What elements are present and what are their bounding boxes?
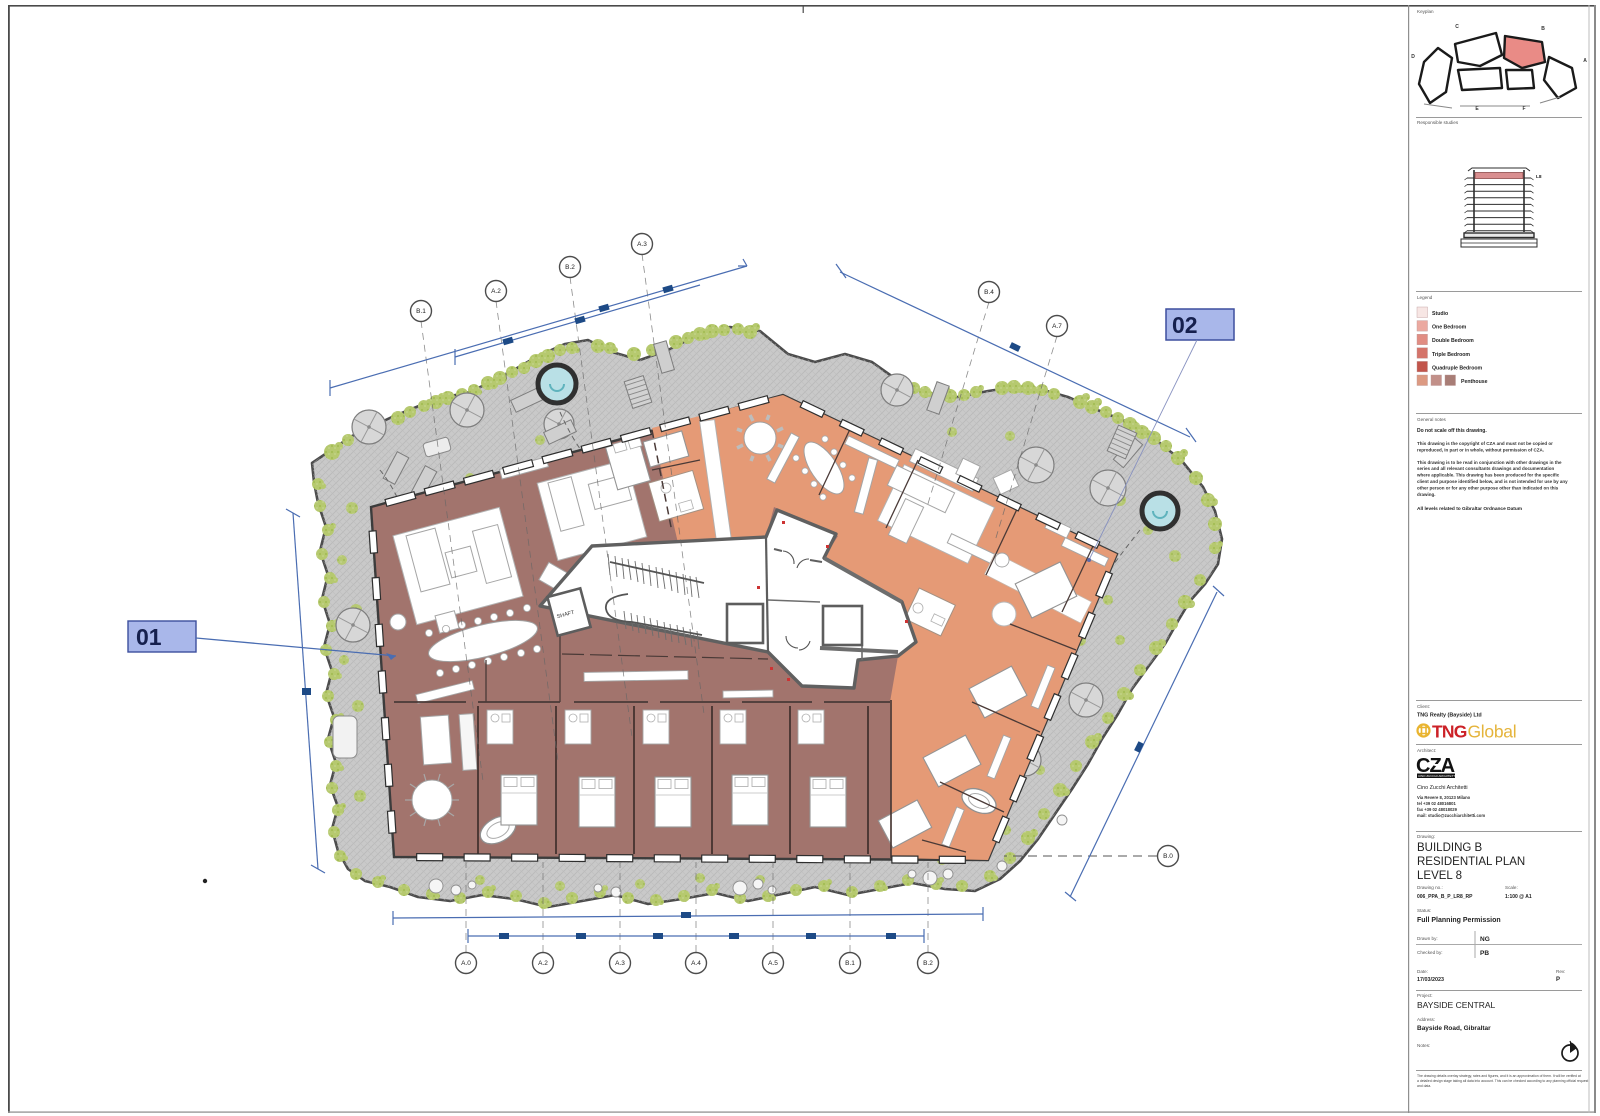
svg-text:P: P xyxy=(1556,977,1560,983)
svg-text:Drawing no.:: Drawing no.: xyxy=(1417,885,1443,890)
svg-text:Via Revere 8, 20123 Milano: Via Revere 8, 20123 Milano xyxy=(1417,795,1471,800)
svg-text:A.2: A.2 xyxy=(491,288,501,295)
svg-text:Client:: Client: xyxy=(1417,704,1430,709)
svg-text:drawing.: drawing. xyxy=(1417,492,1436,497)
svg-text:BUILDING B: BUILDING B xyxy=(1417,842,1483,854)
svg-text:One Bedroom: One Bedroom xyxy=(1432,325,1467,331)
svg-text:Penthouse: Penthouse xyxy=(1461,379,1488,385)
svg-text:F: F xyxy=(1522,106,1525,112)
svg-text:Keyplan: Keyplan xyxy=(1417,9,1434,14)
svg-text:B.1: B.1 xyxy=(416,308,426,315)
svg-text:Triple Bedroom: Triple Bedroom xyxy=(1432,352,1470,358)
svg-text:A.2: A.2 xyxy=(538,960,548,967)
svg-text:B.0: B.0 xyxy=(1163,853,1173,860)
svg-text:A.7: A.7 xyxy=(1052,323,1062,330)
svg-text:Bayside Road, Gibraltar: Bayside Road, Gibraltar xyxy=(1417,1025,1491,1032)
svg-text:B.1: B.1 xyxy=(845,960,855,967)
svg-text:reproduced, in part or in whol: reproduced, in part or in whole, without… xyxy=(1417,447,1544,452)
svg-text:Legend: Legend xyxy=(1417,295,1433,300)
svg-text:other person or for any other: other person or for any other purpose ot… xyxy=(1417,485,1559,490)
svg-text:a detailed design stage taking: a detailed design stage taking all data … xyxy=(1417,1079,1588,1083)
svg-text:BAYSIDE CENTRAL: BAYSIDE CENTRAL xyxy=(1417,1000,1496,1010)
svg-text:Project:: Project: xyxy=(1417,993,1433,998)
svg-text:and data.: and data. xyxy=(1417,1084,1431,1088)
svg-text:TNG: TNG xyxy=(1432,722,1467,742)
svg-text:client and purpose identified: client and purpose identified below, and… xyxy=(1417,479,1568,484)
svg-text:A: A xyxy=(1583,58,1587,64)
svg-text:B.4: B.4 xyxy=(984,289,994,296)
svg-text:This drawing is the copyright: This drawing is the copyright of CZA and… xyxy=(1417,441,1553,446)
svg-text:006_PPA_B_P_LR8_RP: 006_PPA_B_P_LR8_RP xyxy=(1417,894,1473,900)
svg-text:Quadruple Bedroom: Quadruple Bedroom xyxy=(1432,365,1483,371)
svg-text:B.2: B.2 xyxy=(565,264,575,271)
svg-text:A.3: A.3 xyxy=(637,241,647,248)
svg-text:Responsible studies: Responsible studies xyxy=(1417,120,1459,125)
svg-text:Checked by:: Checked by: xyxy=(1417,950,1443,955)
svg-text:02: 02 xyxy=(1172,312,1198,338)
svg-text:A.4: A.4 xyxy=(691,960,701,967)
svg-text:Full Planning Permission: Full Planning Permission xyxy=(1417,917,1501,924)
svg-text:Double Bedroom: Double Bedroom xyxy=(1432,338,1474,344)
svg-text:B.2: B.2 xyxy=(923,960,933,967)
svg-text:1:100 @ A1: 1:100 @ A1 xyxy=(1505,894,1532,900)
svg-text:fax +39 02 48018029: fax +39 02 48018029 xyxy=(1417,807,1458,812)
svg-text:TNG Realty (Bayside) Ltd: TNG Realty (Bayside) Ltd xyxy=(1417,713,1482,719)
svg-text:mail: studio@zucchiarchitetti.: mail: studio@zucchiarchitetti.com xyxy=(1417,813,1485,818)
svg-text:CINO ZUCCHI ARCHITETTI: CINO ZUCCHI ARCHITETTI xyxy=(1418,774,1456,778)
svg-text:Studio: Studio xyxy=(1432,311,1448,317)
svg-text:General notes: General notes xyxy=(1417,417,1447,422)
svg-text:Architect:: Architect: xyxy=(1417,748,1436,753)
svg-text:Cino Zucchi Architetti: Cino Zucchi Architetti xyxy=(1417,785,1468,791)
svg-text:tel +39 02 48016801: tel +39 02 48016801 xyxy=(1417,801,1456,806)
svg-text:L8: L8 xyxy=(1536,174,1542,180)
svg-text:NG: NG xyxy=(1480,936,1490,943)
svg-text:Status:: Status: xyxy=(1417,908,1431,913)
svg-text:A.3: A.3 xyxy=(615,960,625,967)
svg-text:B: B xyxy=(1541,26,1545,32)
svg-text:The drawing details overlay st: The drawing details overlay strategy, ra… xyxy=(1417,1074,1581,1078)
svg-text:Global: Global xyxy=(1468,722,1517,742)
svg-text:Drawing:: Drawing: xyxy=(1417,834,1435,839)
svg-text:series and all relevant consul: series and all relevant consultants draw… xyxy=(1417,466,1555,471)
svg-text:Address:: Address: xyxy=(1417,1017,1435,1022)
svg-text:D: D xyxy=(1411,54,1415,60)
svg-text:Notes:: Notes: xyxy=(1417,1043,1430,1048)
svg-text:Do not scale off this drawing.: Do not scale off this drawing. xyxy=(1417,428,1487,434)
svg-text:17/03/2023: 17/03/2023 xyxy=(1417,977,1444,983)
svg-text:01: 01 xyxy=(136,624,162,650)
svg-text:A.0: A.0 xyxy=(461,960,471,967)
svg-text:LEVEL 8: LEVEL 8 xyxy=(1417,870,1462,882)
svg-text:C: C xyxy=(1455,24,1459,30)
svg-text:RESIDENTIAL PLAN: RESIDENTIAL PLAN xyxy=(1417,856,1525,868)
svg-text:A.5: A.5 xyxy=(768,960,778,967)
svg-text:Scale:: Scale: xyxy=(1505,885,1518,890)
svg-text:This drawing is to be read in: This drawing is to be read in conjunctio… xyxy=(1417,460,1562,465)
svg-text:PB: PB xyxy=(1480,950,1489,957)
svg-text:Rev:: Rev: xyxy=(1556,969,1565,974)
svg-text:All levels related to Gibralta: All levels related to Gibraltar Ordnance… xyxy=(1417,506,1522,512)
svg-text:where applicable. This drawing: where applicable. This drawing has been … xyxy=(1416,473,1560,478)
svg-text:Date:: Date: xyxy=(1417,969,1428,974)
svg-text:Drawn by:: Drawn by: xyxy=(1417,936,1438,941)
